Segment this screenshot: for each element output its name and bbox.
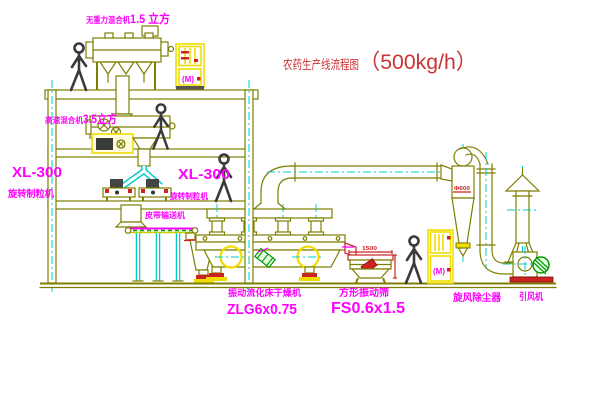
label-fan: 引风机 xyxy=(519,291,543,303)
exhaust-duct xyxy=(254,163,452,209)
conveyor-supports xyxy=(133,233,183,281)
label-granulator-left-model: XL-300 xyxy=(12,164,62,181)
label-sieve-model: FS0.6x1.5 xyxy=(331,300,405,317)
page-title: 农药生产线流程图（500kg/h） xyxy=(283,50,477,74)
person-figure xyxy=(406,237,421,284)
cyclone-dimension: Φ600 xyxy=(454,186,470,192)
person-figure xyxy=(71,44,86,91)
process-flow-canvas: Φ600 1500 xyxy=(0,0,600,403)
process-flow-diagram: Φ600 1500 xyxy=(0,0,600,403)
building-column-right xyxy=(245,80,253,292)
label-dryer-model: ZLG6x0.75 xyxy=(227,301,297,318)
gravity-free-mixer xyxy=(86,26,174,114)
label-belt-conveyor: 皮带输送机 xyxy=(144,210,185,220)
label-gravity-mixer: 无重力混合机1.5 立方 xyxy=(85,11,170,26)
cyclone-separator: Φ600 xyxy=(452,144,495,268)
discharge-chute xyxy=(116,205,146,227)
granulator-right xyxy=(139,179,171,201)
label-sieve-name: 方形振动筛 xyxy=(339,286,389,299)
label-granulator-left-name: 旋转制粒机 xyxy=(7,188,54,200)
label-cyclone: 旋风除尘器 xyxy=(452,291,502,304)
label-granulator-right-model: XL-300 xyxy=(178,166,230,183)
sieve-dimension: 1500 xyxy=(362,246,377,252)
hoist-right-motor-mark: (M) xyxy=(433,267,445,276)
square-vibrating-sieve: 1500 xyxy=(342,246,397,283)
hoist-top-motor-mark: (M) xyxy=(182,75,194,84)
fluid-bed-dryer xyxy=(187,204,356,283)
belt-conveyor xyxy=(125,228,198,281)
label-granulator-right-name: 旋转制粒机 xyxy=(169,191,208,201)
label-dryer-name: 振动流化床干燥机 xyxy=(228,287,301,298)
